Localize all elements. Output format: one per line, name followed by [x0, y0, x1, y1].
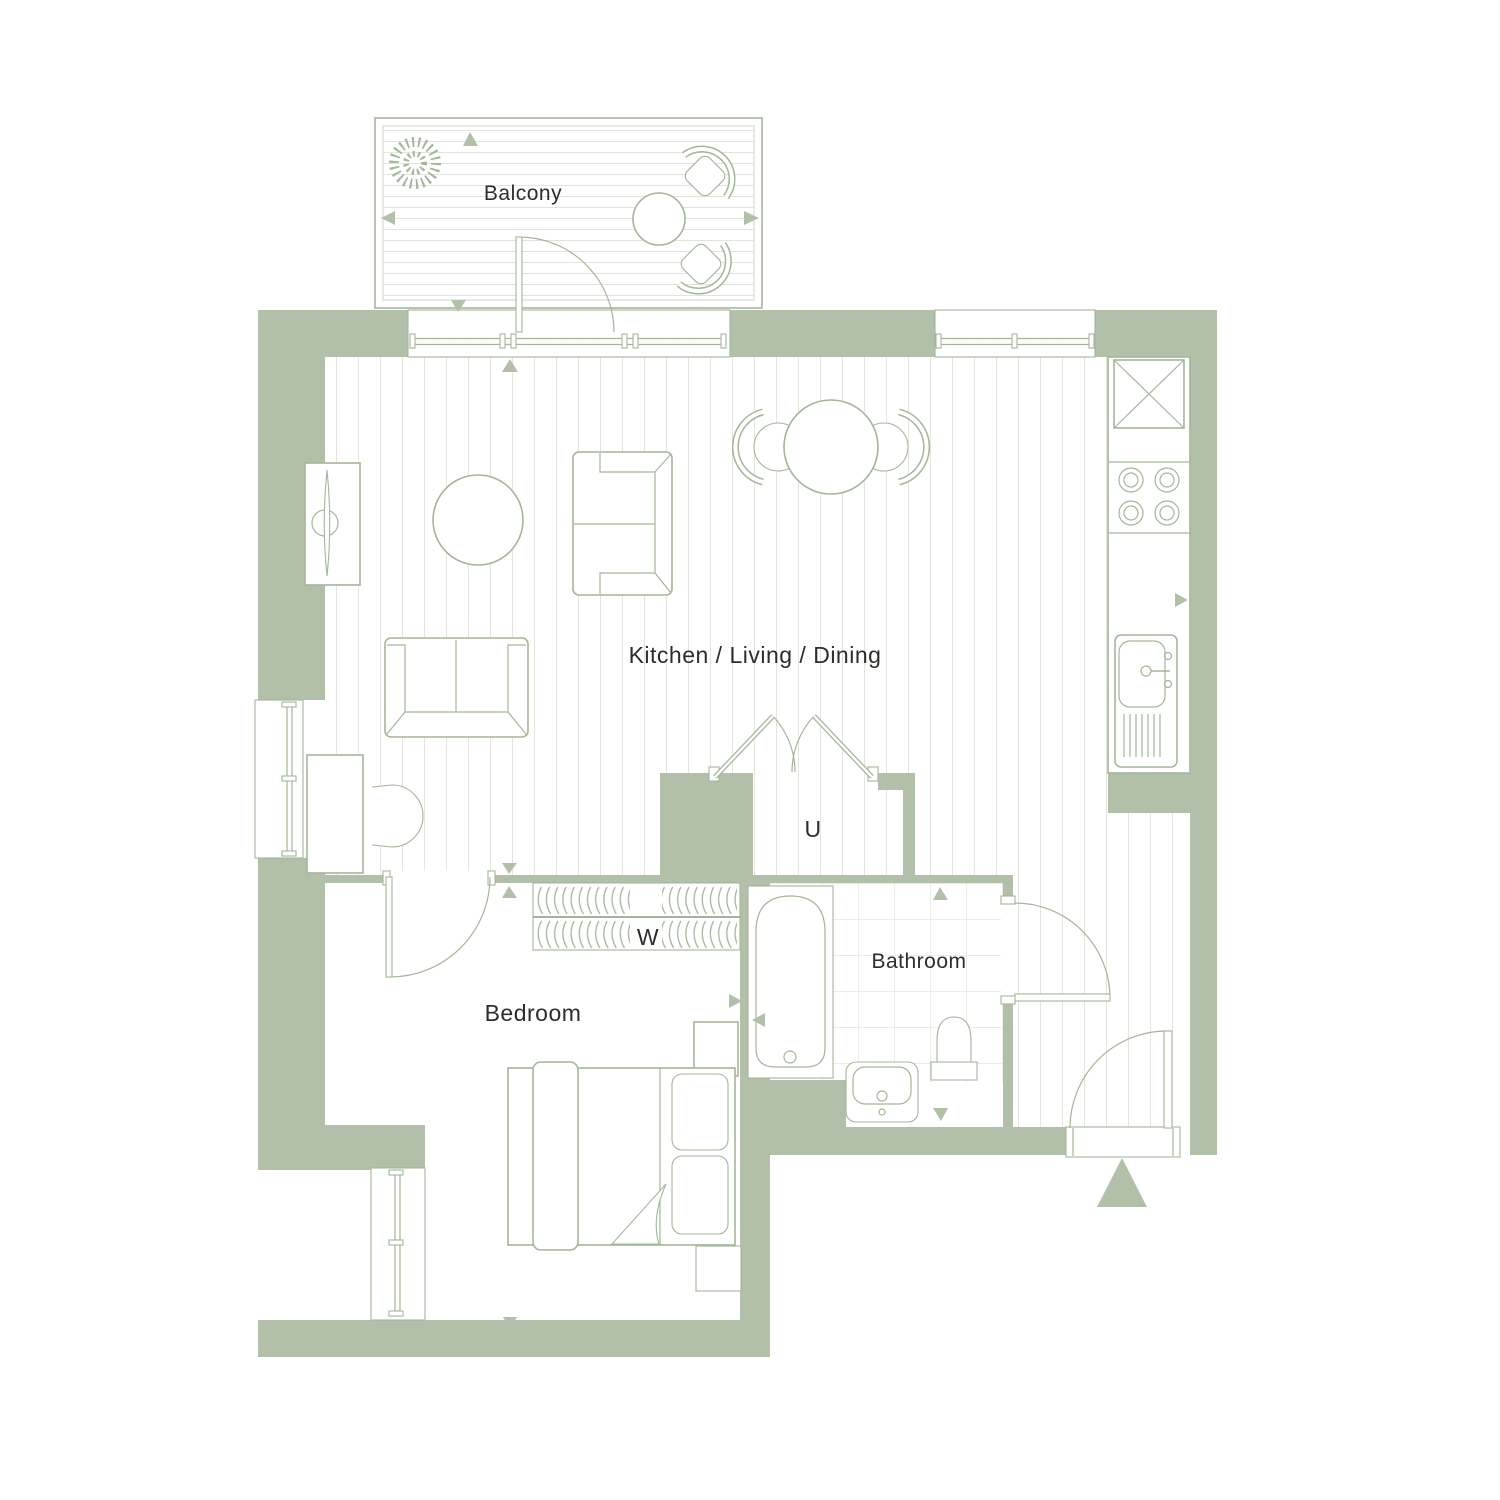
bathroom-door-jamb-top [1001, 896, 1015, 904]
bedroom-door-opening [388, 871, 490, 885]
room-label-bathroom: Bathroom [871, 950, 966, 973]
bathroom-door-opening [1001, 903, 1015, 998]
room-label-kitchen-living-dining: Kitchen / Living / Dining [629, 642, 882, 668]
room-label-wardrobe: W [637, 924, 659, 950]
tv-unit [305, 463, 360, 585]
balcony-table [633, 193, 685, 245]
entrance-arrow-icon [1097, 1158, 1147, 1207]
wall-utility-left [660, 773, 753, 883]
wall-bathroom-top [750, 875, 1013, 883]
wall-bottom [258, 1320, 770, 1357]
tv-icon [324, 470, 330, 576]
round-rug [433, 475, 523, 565]
kitchen-window [935, 310, 1095, 357]
bedroom-door-jamb-right [488, 871, 495, 885]
sink-drainer [1124, 714, 1160, 757]
bed [508, 1062, 735, 1250]
bathtub [748, 886, 833, 1078]
wall-kitchen-stub [1108, 773, 1192, 813]
wall-bathroom-bottom [744, 1127, 1066, 1155]
room-label-utility: U [804, 816, 821, 842]
bed-blanket [533, 1062, 578, 1250]
wall-bedroom-top-left [325, 875, 388, 883]
dimension-marker-icon [502, 886, 517, 898]
floor-plan-canvas: Balcony Kitchen / Living / Dining U W Be… [0, 0, 1500, 1500]
wall-utility-right [903, 773, 915, 883]
kitchen-counter [1108, 357, 1190, 773]
pillow-bottom [672, 1156, 728, 1234]
bedroom-window [371, 1168, 425, 1320]
dining-table [784, 400, 878, 494]
wall-right [1190, 310, 1217, 1155]
balcony-window-assembly [408, 310, 730, 357]
loveseat [385, 638, 528, 737]
balcony [375, 118, 762, 308]
wall-niche [696, 1246, 741, 1291]
bedroom-door-swing [386, 877, 490, 977]
dimension-marker-icon [933, 1108, 948, 1121]
bedroom-furniture [508, 1022, 741, 1291]
floor-plan: Balcony Kitchen / Living / Dining U W Be… [0, 0, 1500, 1500]
wall-left-step [258, 1125, 425, 1170]
basin [846, 1062, 918, 1122]
pillow-top [672, 1074, 728, 1150]
entrance-threshold [1066, 1127, 1180, 1157]
bathroom-door-jamb-bottom [1001, 996, 1015, 1004]
hallway-floor-upper [1108, 813, 1190, 875]
sofa [573, 452, 672, 595]
wall-bathroom-right-lower [1003, 998, 1013, 1127]
room-label-bedroom: Bedroom [485, 1000, 582, 1026]
room-label-balcony: Balcony [484, 182, 562, 205]
